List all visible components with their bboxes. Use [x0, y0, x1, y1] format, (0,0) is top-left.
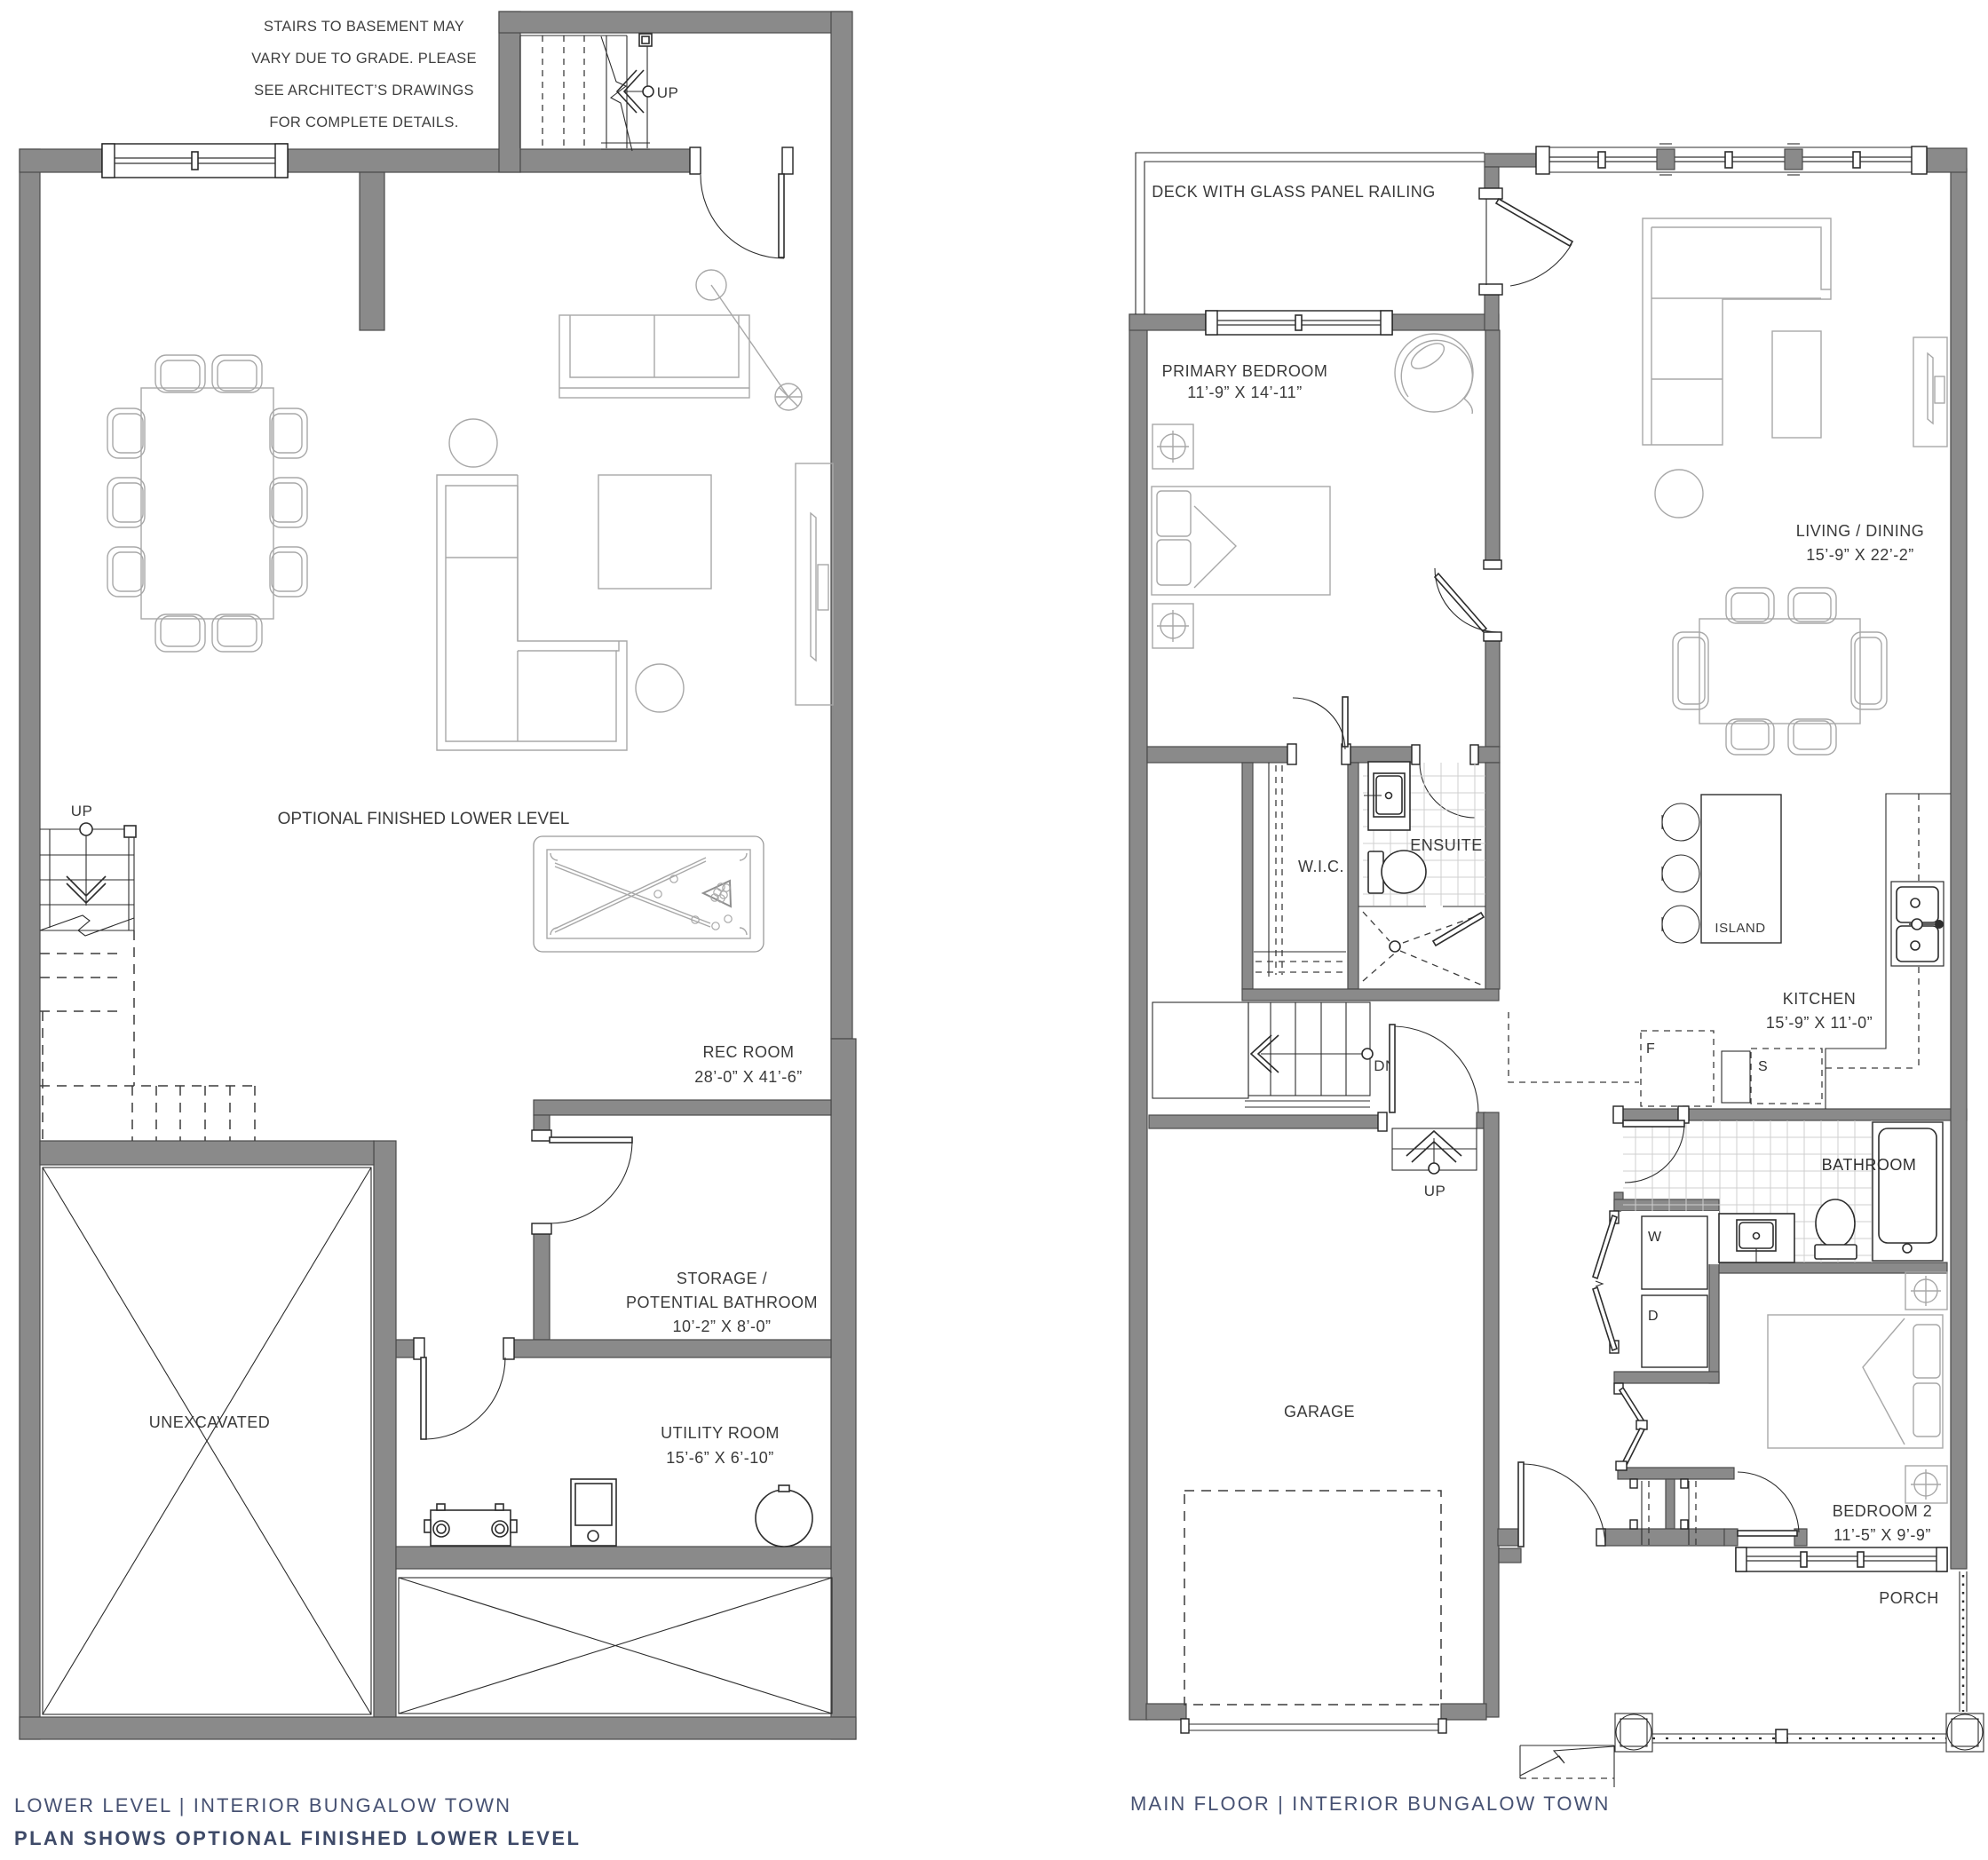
svg-text:VARY DUE TO GRADE. PLEASE: VARY DUE TO GRADE. PLEASE — [251, 51, 477, 67]
svg-text:PRIMARY BEDROOM: PRIMARY BEDROOM — [1162, 362, 1328, 380]
svg-text:15’-6” X 6’-10”: 15’-6” X 6’-10” — [666, 1449, 774, 1467]
svg-text:DECK WITH GLASS PANEL RAILING: DECK WITH GLASS PANEL RAILING — [1152, 183, 1436, 201]
svg-text:REC ROOM: REC ROOM — [703, 1043, 795, 1061]
svg-text:15’-9” X 11’-0”: 15’-9” X 11’-0” — [1766, 1014, 1873, 1032]
svg-text:FOR COMPLETE DETAILS.: FOR COMPLETE DETAILS. — [269, 115, 458, 131]
svg-text:S: S — [1758, 1059, 1768, 1074]
svg-text:UTILITY ROOM: UTILITY ROOM — [661, 1424, 780, 1442]
svg-text:W.I.C.: W.I.C. — [1298, 858, 1344, 875]
svg-text:GARAGE: GARAGE — [1284, 1403, 1355, 1421]
svg-text:BATHROOM: BATHROOM — [1822, 1156, 1917, 1174]
svg-text:SEE ARCHITECT’S DRAWINGS: SEE ARCHITECT’S DRAWINGS — [254, 83, 474, 99]
svg-text:10’-2” X 8’-0”: 10’-2” X 8’-0” — [672, 1318, 771, 1335]
svg-text:ENSUITE: ENSUITE — [1410, 836, 1483, 854]
svg-text:F: F — [1646, 1041, 1655, 1057]
svg-text:MAIN FLOOR | INTERIOR BUNGALOW: MAIN FLOOR | INTERIOR BUNGALOW TOWN — [1130, 1793, 1610, 1815]
svg-text:UP: UP — [71, 803, 93, 819]
svg-text:PLAN SHOWS OPTIONAL FINISHED L: PLAN SHOWS OPTIONAL FINISHED LOWER LEVEL — [14, 1827, 581, 1849]
svg-text:STAIRS TO BASEMENT MAY: STAIRS TO BASEMENT MAY — [264, 19, 464, 35]
svg-text:KITCHEN: KITCHEN — [1783, 990, 1857, 1008]
svg-text:LIVING / DINING: LIVING / DINING — [1796, 522, 1925, 540]
svg-text:BEDROOM 2: BEDROOM 2 — [1833, 1502, 1933, 1520]
svg-text:11’-9” X 14’-11”: 11’-9” X 14’-11” — [1187, 384, 1302, 401]
svg-text:28’-0” X 41’-6”: 28’-0” X 41’-6” — [694, 1068, 803, 1086]
svg-text:PORCH: PORCH — [1879, 1589, 1939, 1607]
svg-text:W: W — [1648, 1230, 1662, 1245]
svg-text:UP: UP — [1424, 1183, 1446, 1199]
svg-text:OPTIONAL FINISHED LOWER LEVEL: OPTIONAL FINISHED LOWER LEVEL — [278, 810, 570, 828]
svg-text:LOWER LEVEL | INTERIOR BUNGALO: LOWER LEVEL | INTERIOR BUNGALOW TOWN — [14, 1794, 511, 1816]
svg-text:D: D — [1648, 1309, 1659, 1324]
svg-text:STORAGE /: STORAGE / — [677, 1270, 767, 1287]
svg-text:15’-9” X 22’-2”: 15’-9” X 22’-2” — [1806, 546, 1914, 564]
svg-text:11’-5” X 9’-9”: 11’-5” X 9’-9” — [1834, 1526, 1931, 1544]
svg-text:UNEXCAVATED: UNEXCAVATED — [149, 1413, 271, 1431]
svg-text:ISLAND: ISLAND — [1715, 921, 1765, 936]
svg-text:UP: UP — [657, 84, 679, 101]
svg-text:POTENTIAL BATHROOM: POTENTIAL BATHROOM — [626, 1294, 818, 1311]
